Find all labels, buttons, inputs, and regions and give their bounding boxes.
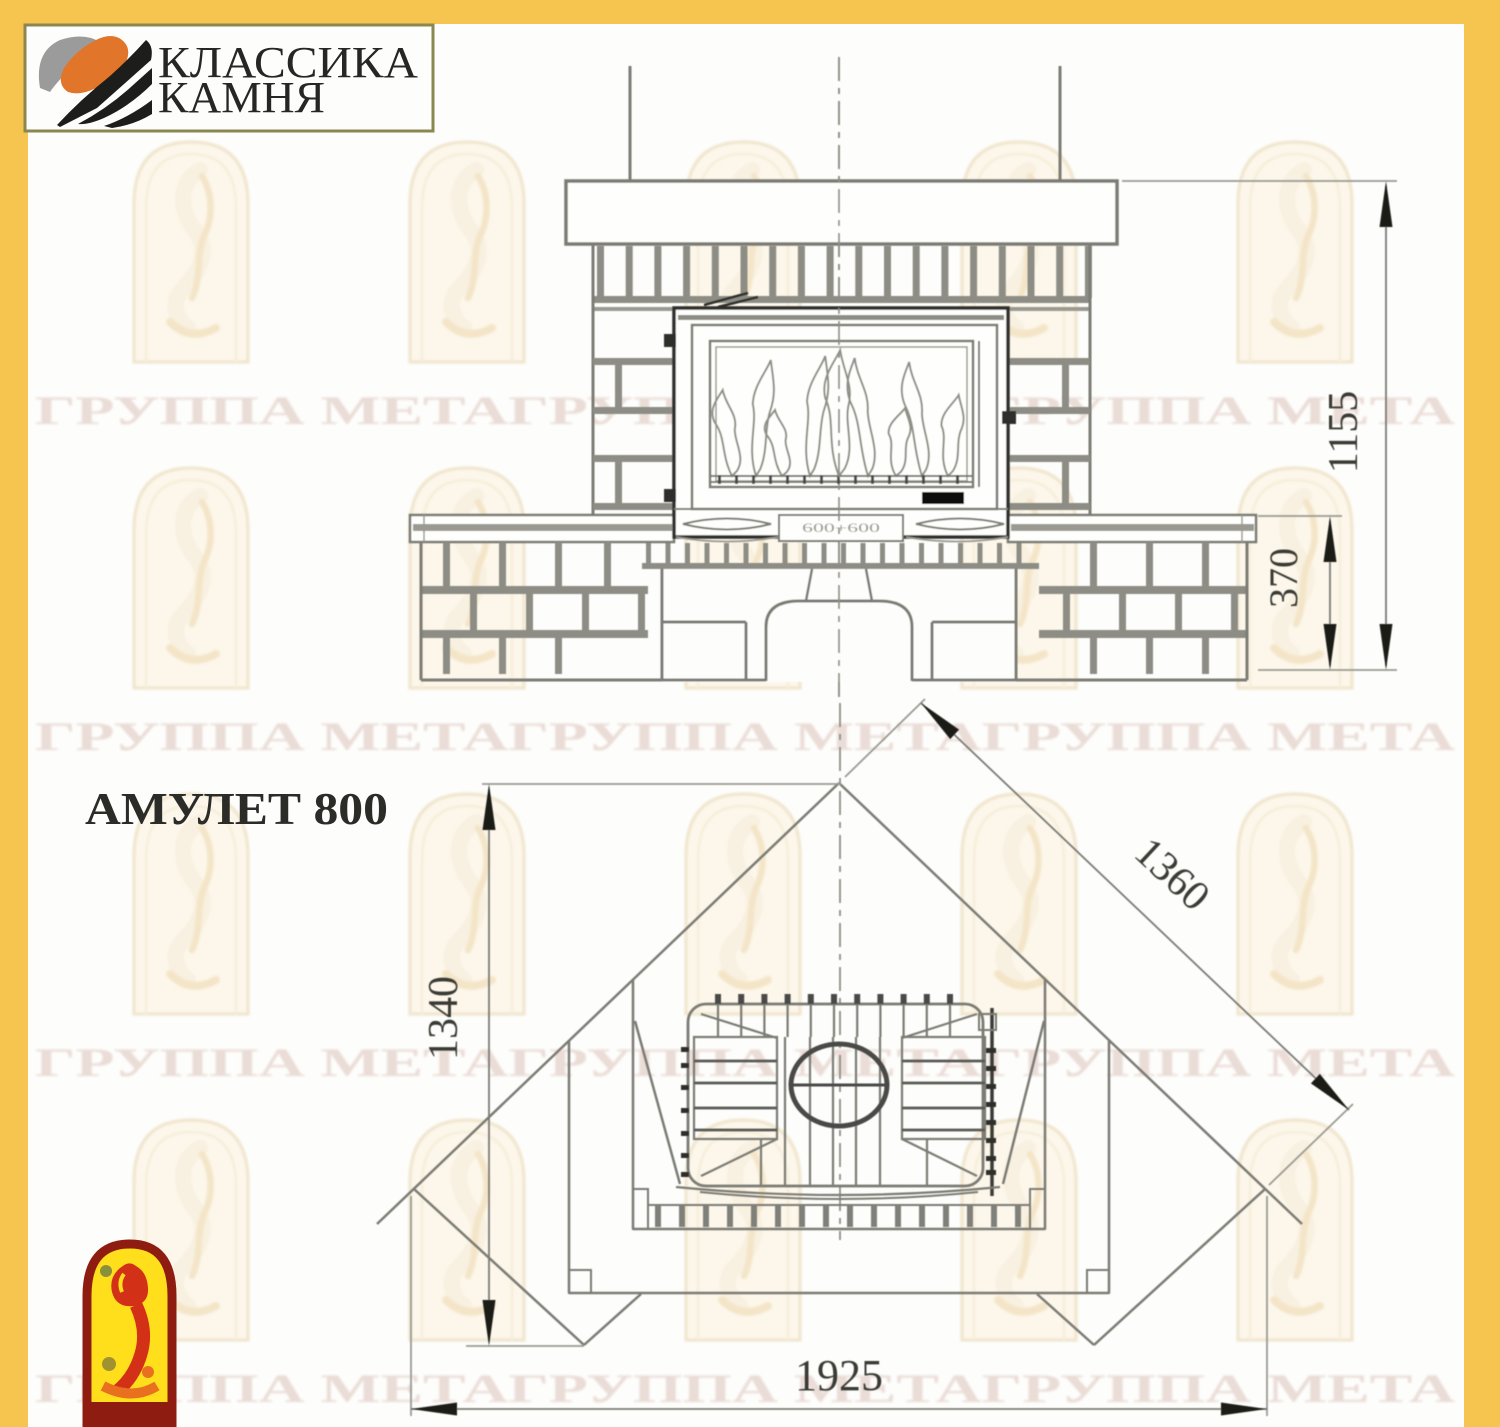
svg-text:1925: 1925	[795, 1351, 883, 1400]
svg-text:КАМНЯ: КАМНЯ	[158, 73, 325, 122]
svg-text:1155: 1155	[1321, 391, 1367, 473]
svg-text:1340: 1340	[421, 976, 467, 1060]
svg-text:ГРУППА МЕТАГРУППА МЕТАГРУППА М: ГРУППА МЕТАГРУППА МЕТАГРУППА МЕТА	[35, 714, 1455, 759]
svg-text:600+600: 600+600	[802, 520, 880, 535]
svg-text:АМУЛЕТ 800: АМУЛЕТ 800	[85, 783, 388, 834]
svg-text:ГРУППА МЕТАГРУППА МЕТАГРУППА М: ГРУППА МЕТАГРУППА МЕТАГРУППА МЕТА	[35, 1366, 1455, 1411]
svg-text:ГРУППА МЕТАГРУППА МЕТАГРУППА М: ГРУППА МЕТАГРУППА МЕТАГРУППА МЕТА	[35, 1040, 1455, 1085]
svg-text:370: 370	[1261, 548, 1306, 608]
